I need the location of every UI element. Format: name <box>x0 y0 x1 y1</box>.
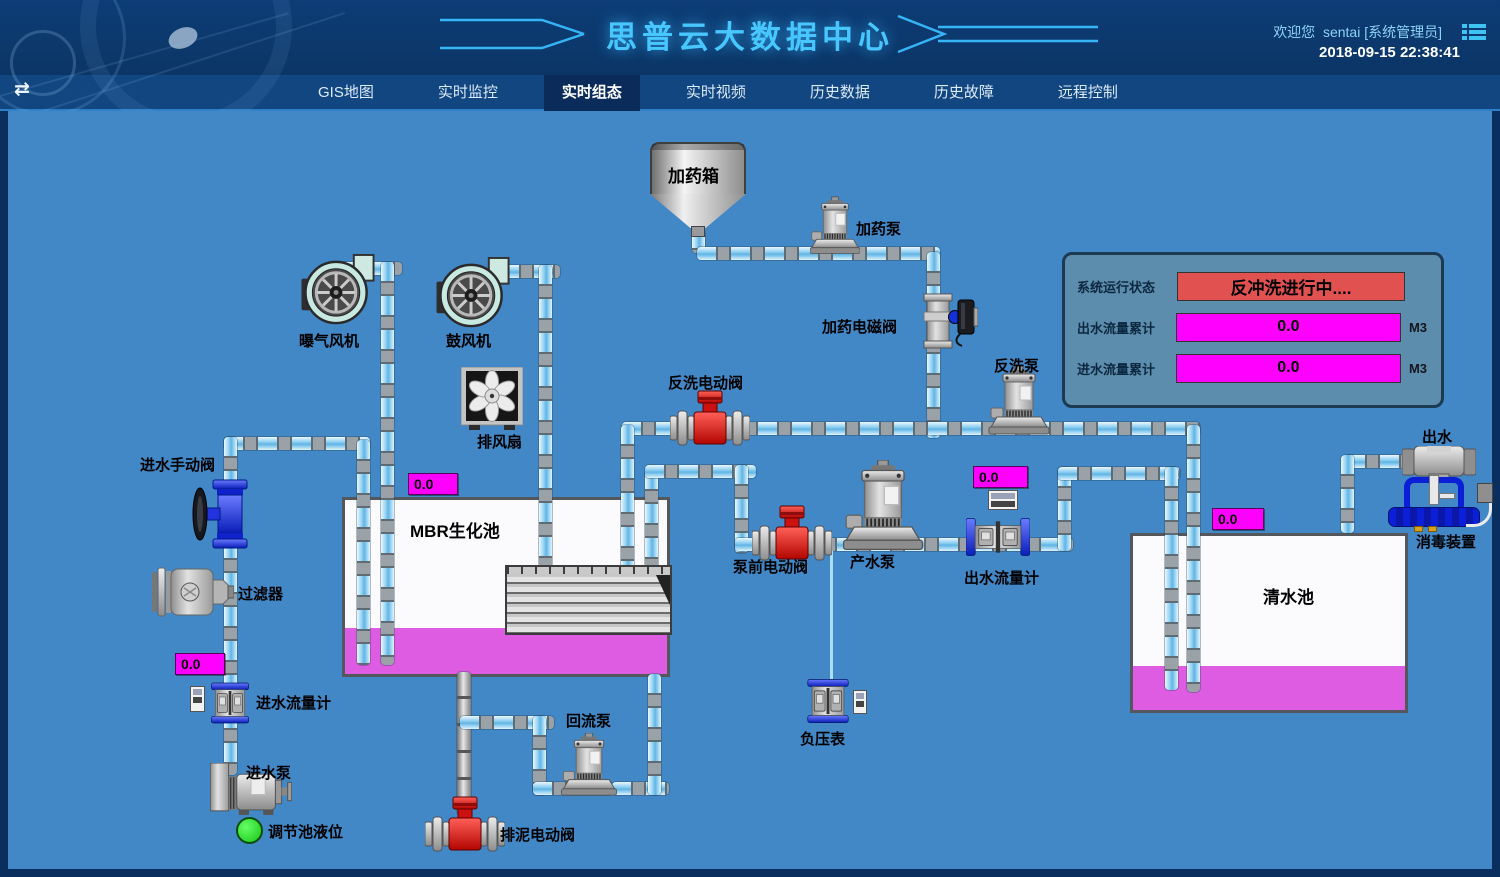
system-status-value: 反冲洗进行中.... <box>1177 272 1405 301</box>
filter-label: 过滤器 <box>238 583 283 604</box>
dosing-pump-icon[interactable] <box>810 196 860 256</box>
pipe-backwash-to-cleantank <box>1187 425 1200 692</box>
welcome-label: 欢迎您 <box>1273 24 1315 40</box>
product-pump-icon[interactable] <box>843 460 923 552</box>
disinfection-connector <box>1477 483 1493 503</box>
vacuum-gauge-label: 负压表 <box>800 728 845 749</box>
dosing-solenoid-valve-icon[interactable] <box>916 292 978 350</box>
filter-icon[interactable] <box>152 566 234 618</box>
exhaust-fan-icon[interactable] <box>461 367 523 431</box>
outlet-total-unit: M3 <box>1409 320 1427 335</box>
scada-screen: 思普云大数据中心 欢迎您 sentai [系统管理员] 2018-09-15 2… <box>0 0 1500 877</box>
system-status-label: 系统运行状态 <box>1077 277 1169 296</box>
vacuum-gauge-transmitter <box>853 690 867 714</box>
inlet-manual-valve-label: 进水手动阀 <box>140 454 215 475</box>
collapse-arrows-icon[interactable]: ⇄ <box>14 78 30 101</box>
inlet-total-value: 0.0 <box>1176 354 1401 383</box>
inlet-flowmeter-transmitter <box>190 686 205 712</box>
nav-tabs: GIS地图 实时监控 实时组态 实时视频 历史数据 历史故障 远程控制 <box>300 75 1164 111</box>
outlet-flowmeter-label: 出水流量计 <box>964 567 1039 588</box>
tab-remote-control[interactable]: 远程控制 <box>1040 75 1136 111</box>
welcome-text: 欢迎您 sentai [系统管理员] <box>1273 22 1442 42</box>
pipe-return-to-tank <box>648 674 661 795</box>
blower-label: 鼓风机 <box>446 330 491 351</box>
inlet-flow-value: 0.0 <box>175 653 225 675</box>
blower-icon[interactable] <box>435 256 515 330</box>
tab-realtime-video[interactable]: 实时视频 <box>668 75 764 111</box>
outlet-label: 出水 <box>1422 426 1452 447</box>
outlet-total-row: 出水流量累计 0.0 M3 <box>1077 312 1427 342</box>
tab-realtime-mimic[interactable]: 实时组态 <box>544 75 640 111</box>
pipe-inlet-to-tank <box>357 440 370 665</box>
pipe-product-h3 <box>1058 467 1180 480</box>
outlet-flowmeter-transmitter <box>988 490 1018 510</box>
disinfection-piston <box>1429 475 1439 505</box>
backwash-pump-icon[interactable] <box>988 366 1050 436</box>
pipe-aeration2-vertical <box>539 265 552 568</box>
username: sentai [系统管理员] <box>1323 24 1442 40</box>
pipe-product-to-cleantank <box>1165 467 1178 690</box>
aeration-blower-label: 曝气风机 <box>299 330 359 351</box>
inlet-total-label: 进水流量累计 <box>1077 359 1168 378</box>
product-pump-label: 产水泵 <box>850 551 895 572</box>
dosing-tank[interactable] <box>650 138 746 238</box>
membrane-module <box>505 565 672 635</box>
status-panel: 系统运行状态 反冲洗进行中.... 出水流量累计 0.0 M3 进水流量累计 0… <box>1062 252 1444 408</box>
return-pump-icon[interactable] <box>556 733 622 797</box>
exhaust-fan-label: 排风扇 <box>477 431 522 452</box>
tank-level-label: 调节池液位 <box>268 821 343 842</box>
sludge-valve-label: 排泥电动阀 <box>500 824 575 845</box>
dosing-pump-label: 加药泵 <box>856 218 901 239</box>
tab-gis-map[interactable]: GIS地图 <box>300 75 392 111</box>
disinfection-arm <box>1439 493 1455 499</box>
menu-list-icon[interactable] <box>1462 24 1486 44</box>
inlet-flowmeter-label: 进水流量计 <box>256 692 331 713</box>
pipe-inlet-horizontal <box>224 437 370 450</box>
dosing-tank-label: 加药箱 <box>668 162 719 187</box>
clean-tank-label: 清水池 <box>1263 583 1314 608</box>
dosing-valve-label: 加药电磁阀 <box>822 316 897 337</box>
outlet-flow-value: 0.0 <box>973 466 1028 488</box>
pipe-outlet-vertical <box>1341 455 1354 533</box>
mbr-level-value: 0.0 <box>408 473 458 495</box>
outlet-total-label: 出水流量累计 <box>1077 318 1168 337</box>
sludge-electric-valve-icon[interactable] <box>425 796 505 858</box>
clean-tank-level-value: 0.0 <box>1212 508 1264 530</box>
inlet-total-unit: M3 <box>1409 361 1427 376</box>
tab-realtime-monitor[interactable]: 实时监控 <box>420 75 516 111</box>
mbr-tank-label: MBR生化池 <box>410 517 500 542</box>
backwash-electric-valve-icon[interactable] <box>670 390 750 452</box>
inlet-flowmeter-icon[interactable] <box>206 681 254 725</box>
regulating-tank-level-indicator <box>236 817 263 844</box>
pipe-product-membrane-riser <box>645 470 658 568</box>
return-pump-label: 回流泵 <box>566 710 611 731</box>
vacuum-gauge-icon[interactable] <box>802 676 854 726</box>
backwash-valve-label: 反洗电动阀 <box>668 372 743 393</box>
disinfection-label: 消毒装置 <box>1416 531 1476 552</box>
prepump-valve-label: 泵前电动阀 <box>733 556 808 577</box>
inlet-pump-label: 进水泵 <box>246 762 291 783</box>
pipe-pressure-tap <box>830 551 833 682</box>
pipe-backwash-to-membrane <box>621 425 634 570</box>
inlet-manual-valve-icon[interactable] <box>191 478 261 552</box>
process-diagram: 0.0 0.0 0.0 0.0 加药箱 加药泵 加药电磁阀 曝气风机 鼓风机 排… <box>8 111 1492 869</box>
pipe-aeration1-vertical <box>381 262 394 665</box>
aeration-blower-icon[interactable] <box>300 253 380 327</box>
inlet-total-row: 进水流量累计 0.0 M3 <box>1077 353 1427 383</box>
dosing-tank-outlet <box>691 226 705 237</box>
outlet-flowmeter-icon[interactable] <box>966 508 1030 566</box>
dosing-tank-cone <box>650 194 746 228</box>
tab-history-fault[interactable]: 历史故障 <box>916 75 1012 111</box>
outlet-valve-icon[interactable] <box>1402 446 1476 480</box>
pipe-sludge-vertical <box>457 672 471 815</box>
backwash-pump-label: 反洗泵 <box>994 355 1039 376</box>
outlet-total-value: 0.0 <box>1176 313 1401 342</box>
tab-history-data[interactable]: 历史数据 <box>792 75 888 111</box>
datetime: 2018-09-15 22:38:41 <box>1319 44 1460 61</box>
status-row: 系统运行状态 反冲洗进行中.... <box>1077 271 1427 301</box>
